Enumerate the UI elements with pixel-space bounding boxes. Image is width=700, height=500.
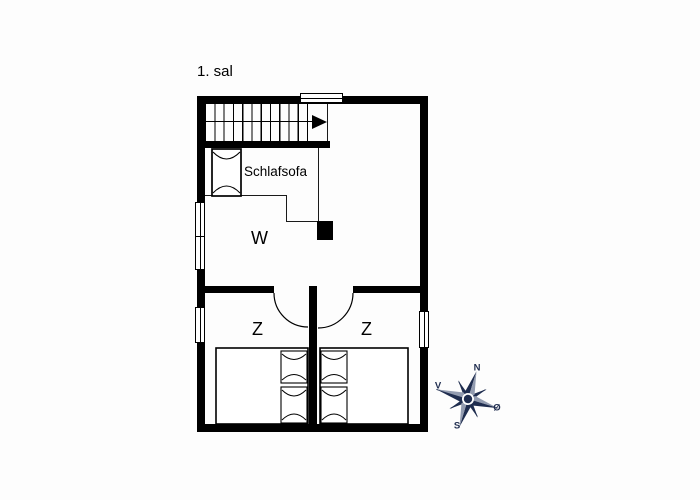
- window-left-upper: [195, 202, 205, 270]
- bed-left: [216, 348, 308, 424]
- compass-label-north: N: [474, 363, 481, 374]
- door-arc-right: [318, 293, 353, 328]
- room-label-z-right: Z: [361, 319, 372, 340]
- window-left-lower-midline: [200, 308, 201, 342]
- stair-direction-line: [205, 121, 313, 122]
- window-top: [300, 93, 343, 103]
- wall-stair-bottom: [197, 141, 330, 148]
- window-left-upper-crossbar: [196, 236, 204, 237]
- room-label-w: W: [251, 228, 268, 249]
- bed-right: [320, 348, 408, 424]
- stair-void-edge-line: [318, 148, 319, 221]
- wall-bedroom-center: [309, 286, 317, 432]
- room-label-z-left: Z: [252, 319, 263, 340]
- window-top-midline: [301, 98, 342, 99]
- wall-outer-right: [420, 96, 428, 432]
- wall-bedroom-divider-left: [197, 286, 274, 293]
- floor-title: 1. sal: [197, 63, 233, 80]
- bed-right-pillow-lower: [321, 387, 347, 423]
- loft-edge-line-to-chimney: [286, 221, 317, 222]
- bed-left-pillow-lower: [281, 387, 307, 423]
- compass-rose-icon: [428, 362, 506, 436]
- compass-label-east: Ø: [493, 403, 500, 414]
- room-label-schlafsofa: Schlafsofa: [244, 164, 307, 179]
- compass-label-west: V: [435, 381, 441, 392]
- window-right: [419, 311, 429, 348]
- bed-left-pillow-upper: [281, 351, 307, 383]
- door-arc-left: [274, 293, 308, 327]
- loft-edge-line-step: [286, 195, 287, 222]
- chimney-block: [317, 221, 333, 240]
- bed-right-pillow-upper: [321, 351, 347, 383]
- wall-bedroom-divider-right: [353, 286, 428, 293]
- stair-direction-arrow: [312, 115, 327, 129]
- sleep-sofa-icon: [212, 149, 241, 196]
- window-right-midline: [424, 312, 425, 347]
- loft-edge-line-horizontal: [205, 195, 286, 196]
- compass-label-south: S: [454, 421, 460, 432]
- window-left-lower: [195, 307, 205, 343]
- floorplan-page: { "title": "1. sal", "colors": { "wall":…: [0, 0, 700, 500]
- stair-edge-line: [327, 104, 328, 141]
- stair-risers: [205, 104, 308, 141]
